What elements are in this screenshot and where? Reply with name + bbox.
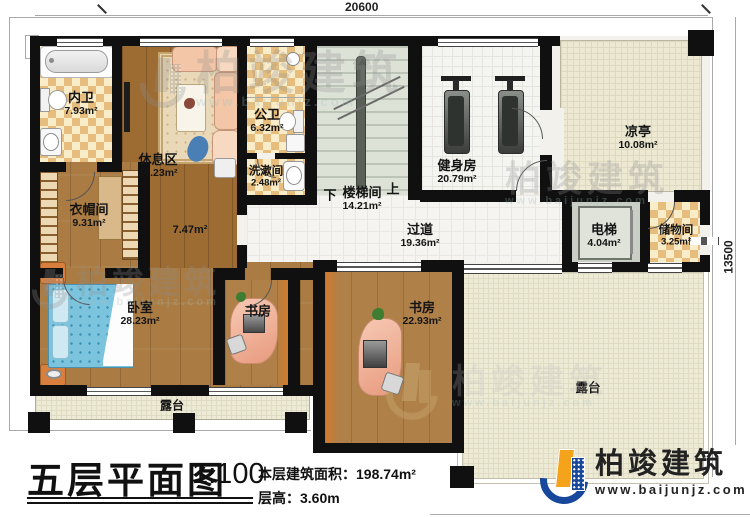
room-name: 卧室: [120, 301, 159, 316]
wall: [540, 36, 552, 110]
room-name: 洗漱间: [249, 165, 284, 178]
room-name: 健身房: [437, 159, 476, 174]
wall: [313, 443, 464, 453]
column: [28, 412, 50, 433]
wall: [313, 260, 337, 272]
room-name: 露台: [160, 399, 184, 412]
sink-basin: [286, 166, 302, 185]
label-lutai-left: 露台: [160, 399, 184, 412]
label-xiuxiqu: 休息区 16.23m²: [138, 153, 177, 179]
brand-name: 柏竣建筑: [595, 450, 747, 479]
wall: [305, 36, 317, 205]
window: [464, 264, 562, 274]
window: [438, 38, 538, 47]
room-liangting: [560, 40, 702, 192]
wall: [420, 190, 516, 202]
sofa: [172, 46, 218, 72]
label-dianti: 电梯 4.04m²: [587, 223, 620, 249]
wall: [237, 245, 247, 268]
room-name: 凉亭: [618, 125, 657, 140]
room-name: 露台: [575, 381, 600, 395]
wall-lamp-glow: [325, 272, 339, 443]
wall: [275, 153, 305, 159]
label-stairs-up: 上: [386, 183, 399, 198]
label-neiwei: 内卫 7.93m²: [64, 91, 97, 117]
window: [337, 262, 421, 272]
wall: [105, 268, 138, 278]
label-shufang-large: 书房 22.93m²: [402, 301, 441, 327]
wall: [283, 385, 313, 396]
property-line: [9, 17, 712, 18]
plant: [372, 308, 384, 320]
room-name: 内卫: [64, 91, 97, 106]
label-lutai-right: 露台: [575, 381, 600, 395]
property-line: [9, 430, 311, 431]
window: [578, 263, 612, 273]
room-area: 16.23m²: [138, 167, 177, 179]
room-area: 2.48m²: [249, 178, 284, 189]
elevator-door: [630, 210, 633, 254]
room-area: 3.25m²: [659, 237, 694, 248]
computer-monitor: [363, 340, 387, 368]
room-name: 储物间: [659, 224, 694, 237]
label-guodao: 过道 19.36m²: [400, 223, 439, 249]
title-underline: [27, 497, 253, 499]
column: [173, 413, 195, 433]
wall: [30, 385, 87, 396]
label-woshi: 卧室 28.23m²: [120, 301, 159, 327]
wall: [682, 262, 710, 272]
room-name: 休息区: [138, 153, 177, 168]
room-name: 过道: [400, 223, 439, 238]
wall: [237, 36, 247, 215]
plan-scale: 1:100: [192, 458, 265, 491]
wall: [30, 36, 40, 396]
label-liangting: 凉亭 10.08m²: [618, 125, 657, 151]
floor-plan-sheet: 20600 13500: [0, 0, 750, 517]
wall: [408, 36, 422, 200]
wall: [612, 262, 648, 272]
wall: [30, 162, 66, 172]
wall: [674, 190, 710, 202]
room-name: 书房: [245, 305, 271, 320]
label-gongwei: 公卫 6.32m²: [250, 108, 283, 134]
column: [688, 30, 714, 56]
wall: [700, 202, 710, 225]
room-area: 4.04m²: [587, 237, 620, 249]
wall: [112, 36, 122, 172]
label-loutijian: 楼梯间 14.21m²: [342, 186, 381, 212]
wall: [213, 278, 225, 385]
room-area: 7.47m²: [173, 224, 208, 236]
wall: [247, 153, 257, 159]
dimension-right-value: 13500: [722, 240, 736, 273]
dimension-line-right: [735, 17, 736, 445]
column: [285, 412, 307, 433]
floor-height-value: 3.60m: [300, 490, 340, 506]
property-line: [9, 17, 10, 430]
floor-area-label: 本层建筑面积：: [258, 466, 356, 482]
floor-height-row: 层高：3.60m: [258, 488, 340, 508]
wall: [452, 272, 464, 450]
wall: [288, 268, 300, 385]
dimension-tick: [97, 4, 107, 14]
wall: [97, 162, 122, 172]
sink: [286, 134, 305, 152]
side-table: [214, 158, 236, 178]
bathtub-basin: [45, 50, 108, 73]
lamp: [46, 369, 62, 379]
treadmill-belt: [448, 96, 464, 146]
window: [250, 38, 294, 47]
brand-site: www.baijunjz.com: [595, 482, 747, 497]
pillow: [52, 325, 69, 359]
label-yimaojian: 衣帽间 9.31m²: [69, 203, 108, 229]
window: [57, 38, 103, 47]
tv: [124, 82, 130, 132]
label-chuwujian: 储物间 3.25m²: [659, 224, 694, 248]
label-corridor-area: 7.47m²: [173, 224, 208, 236]
column: [450, 466, 474, 488]
dimension-top-value: 20600: [345, 0, 378, 14]
room-area: 6.32m²: [250, 122, 283, 134]
pillow: [52, 289, 69, 323]
sink-basin: [43, 133, 59, 151]
brand-logo: 柏竣建筑 www.baijunjz.com: [540, 446, 747, 500]
shower-head: [286, 52, 300, 66]
brand-logo-icon: [540, 446, 588, 500]
window: [209, 387, 283, 396]
wall: [30, 268, 63, 278]
closet-rack: [40, 166, 58, 264]
room-area: 14.21m²: [342, 200, 381, 212]
shower-partition: [247, 97, 305, 98]
dimension-tick: [701, 4, 711, 14]
room-area: 22.93m²: [402, 315, 441, 327]
title-underline: [27, 502, 253, 504]
floor-area-value: 198.74m²: [356, 466, 416, 482]
window: [140, 38, 222, 47]
dimension-line-top: [35, 15, 708, 16]
room-name: 公卫: [250, 108, 283, 123]
bathtub-drain: [49, 58, 54, 63]
wall: [138, 162, 150, 278]
property-line: [712, 17, 713, 477]
window: [87, 387, 151, 396]
room-area: 7.93m²: [64, 105, 97, 117]
floor-height-label: 层高：: [258, 490, 300, 506]
stair-rail: [356, 56, 366, 190]
stairs-up-label: 上: [386, 182, 399, 197]
label-jianshenfang: 健身房 20.79m²: [437, 159, 476, 185]
room-area: 10.08m²: [618, 139, 657, 151]
room-name: 电梯: [587, 223, 620, 238]
wall: [560, 190, 648, 202]
room-name: 衣帽间: [69, 203, 108, 218]
room-area: 20.79m²: [437, 173, 476, 185]
sheet-line: [430, 514, 750, 515]
room-area: 28.23m²: [120, 315, 159, 327]
wall: [562, 262, 578, 272]
label-stairs-down: 下: [323, 189, 336, 204]
room-name: 楼梯间: [342, 186, 381, 201]
room-name: 书房: [402, 301, 441, 316]
wall: [313, 272, 325, 450]
window: [648, 263, 682, 273]
floor-area-row: 本层建筑面积：198.74m²: [258, 464, 416, 484]
stairs-down-label: 下: [323, 188, 336, 203]
room-area: 19.36m²: [400, 237, 439, 249]
brand-logo-text: 柏竣建筑 www.baijunjz.com: [595, 450, 747, 497]
wall: [151, 385, 209, 396]
wall: [421, 260, 464, 272]
window: [689, 237, 719, 245]
label-shufang-small: 书房: [245, 305, 271, 320]
label-xishujian: 洗漱间 2.48m²: [249, 165, 284, 189]
room-area: 9.31m²: [69, 217, 108, 229]
